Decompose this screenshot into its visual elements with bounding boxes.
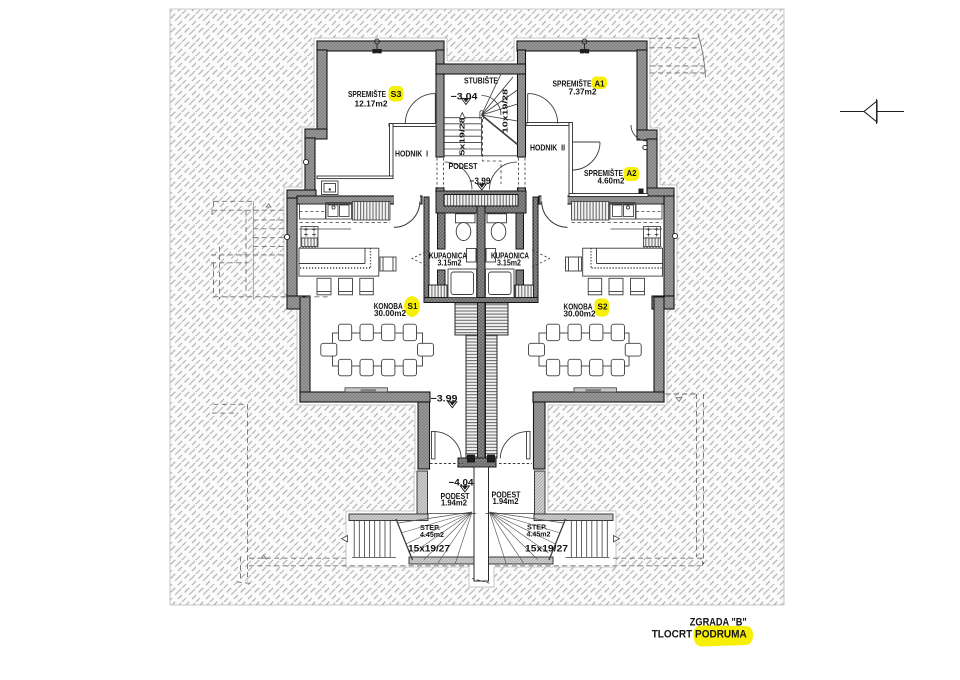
svg-text:7.37m2: 7.37m2: [569, 88, 597, 97]
svg-text:ZGRADA "B": ZGRADA "B": [690, 617, 747, 629]
svg-text:15x19/27: 15x19/27: [408, 542, 450, 553]
svg-text:1.94m2: 1.94m2: [493, 497, 519, 506]
svg-text:15x19/27: 15x19/27: [525, 542, 568, 553]
svg-text:4.45m2: 4.45m2: [420, 530, 444, 539]
svg-text:S3: S3: [391, 89, 402, 99]
svg-text:S2: S2: [598, 302, 608, 312]
svg-text:30.00m2: 30.00m2: [564, 308, 596, 318]
svg-text:TLOCRT PODRUMA: TLOCRT PODRUMA: [652, 628, 747, 640]
svg-text:3.15m2: 3.15m2: [497, 259, 522, 268]
svg-text:10x19/28: 10x19/28: [501, 89, 510, 133]
svg-text:STUBIŠTE: STUBIŠTE: [464, 74, 498, 85]
svg-text:HODNIK II: HODNIK II: [530, 143, 565, 152]
svg-text:5x19/28: 5x19/28: [458, 118, 467, 156]
svg-text:S1: S1: [408, 301, 418, 311]
svg-text:3.15m2: 3.15m2: [438, 259, 463, 268]
svg-text:A2: A2: [627, 169, 637, 178]
svg-text:PODEST: PODEST: [449, 162, 478, 171]
svg-text:4.45m2: 4.45m2: [527, 530, 551, 539]
svg-text:12.17m2: 12.17m2: [355, 98, 388, 108]
svg-text:30.00m2: 30.00m2: [374, 308, 406, 318]
svg-text:HODNIK I: HODNIK I: [395, 150, 428, 159]
svg-text:4.60m2: 4.60m2: [598, 177, 625, 186]
svg-text:1.94m2: 1.94m2: [441, 499, 467, 508]
